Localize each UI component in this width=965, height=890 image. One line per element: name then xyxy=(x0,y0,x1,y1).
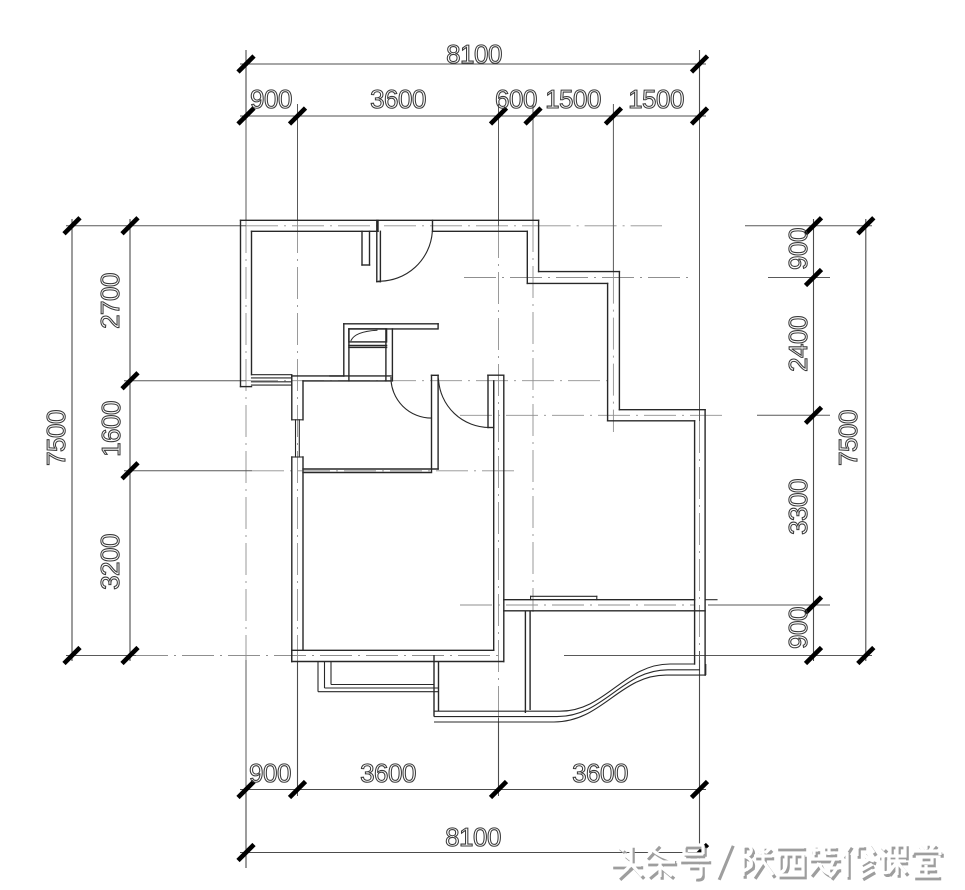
svg-text:7500: 7500 xyxy=(41,410,71,466)
svg-text:8100: 8100 xyxy=(446,39,502,69)
svg-text:2400: 2400 xyxy=(783,316,813,372)
svg-text:1500: 1500 xyxy=(628,84,684,114)
svg-text:3200: 3200 xyxy=(95,534,125,590)
svg-text:3600: 3600 xyxy=(370,84,426,114)
svg-text:3600: 3600 xyxy=(360,758,416,788)
svg-text:3300: 3300 xyxy=(783,479,813,535)
svg-text:1500: 1500 xyxy=(545,84,601,114)
svg-text:900: 900 xyxy=(249,758,291,788)
svg-text:3600: 3600 xyxy=(572,758,628,788)
svg-text:7500: 7500 xyxy=(833,410,863,466)
svg-text:900: 900 xyxy=(250,84,292,114)
svg-text:900: 900 xyxy=(783,607,813,649)
svg-text:2700: 2700 xyxy=(95,273,125,329)
svg-text:900: 900 xyxy=(783,228,813,270)
svg-text:600: 600 xyxy=(495,84,537,114)
svg-text:1600: 1600 xyxy=(96,401,126,457)
svg-text:8100: 8100 xyxy=(445,822,501,852)
